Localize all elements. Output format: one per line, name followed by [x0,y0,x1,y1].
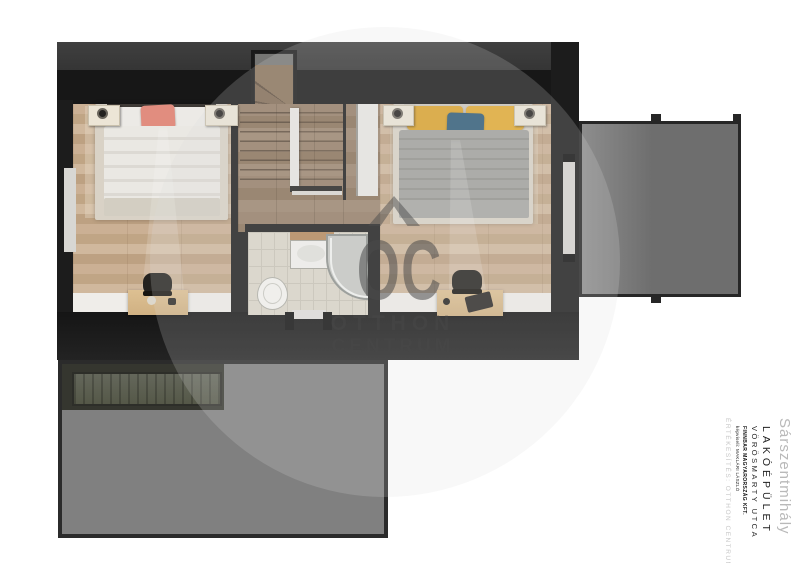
street-name: VÖRÖSMARTY UTCA [750,426,759,539]
oc-logo-letters: OC [357,228,430,312]
balcony-post-bottom [651,294,661,303]
watermark-line2: CENTRUM [318,336,468,358]
company-detail: képviseli: MAKLÁRI LÁSZLÓ [735,426,740,492]
title-block: Sárszentmihály LAKÓÉPÜLET VÖRÖSMARTY UTC… [724,418,798,563]
sales-label: ÉRTÉKESÍTÉS: OTTHON CENTRUM [724,418,731,563]
watermark-line1: OTTHON [318,312,468,336]
balcony-post-corner [733,114,741,123]
lamp-icon [97,108,108,119]
window-sill-left-wall [64,168,76,252]
company-name: FINNBAR MAGYARORSZÁG KFT. [741,426,747,515]
floor-plan: OC OTTHON CENTRUM Sárszentmihály LAKÓÉPÜ… [0,0,800,563]
balcony-post-top [651,114,661,123]
project-location: Sárszentmihály [776,418,793,535]
building-type: LAKÓÉPÜLET [760,426,772,535]
